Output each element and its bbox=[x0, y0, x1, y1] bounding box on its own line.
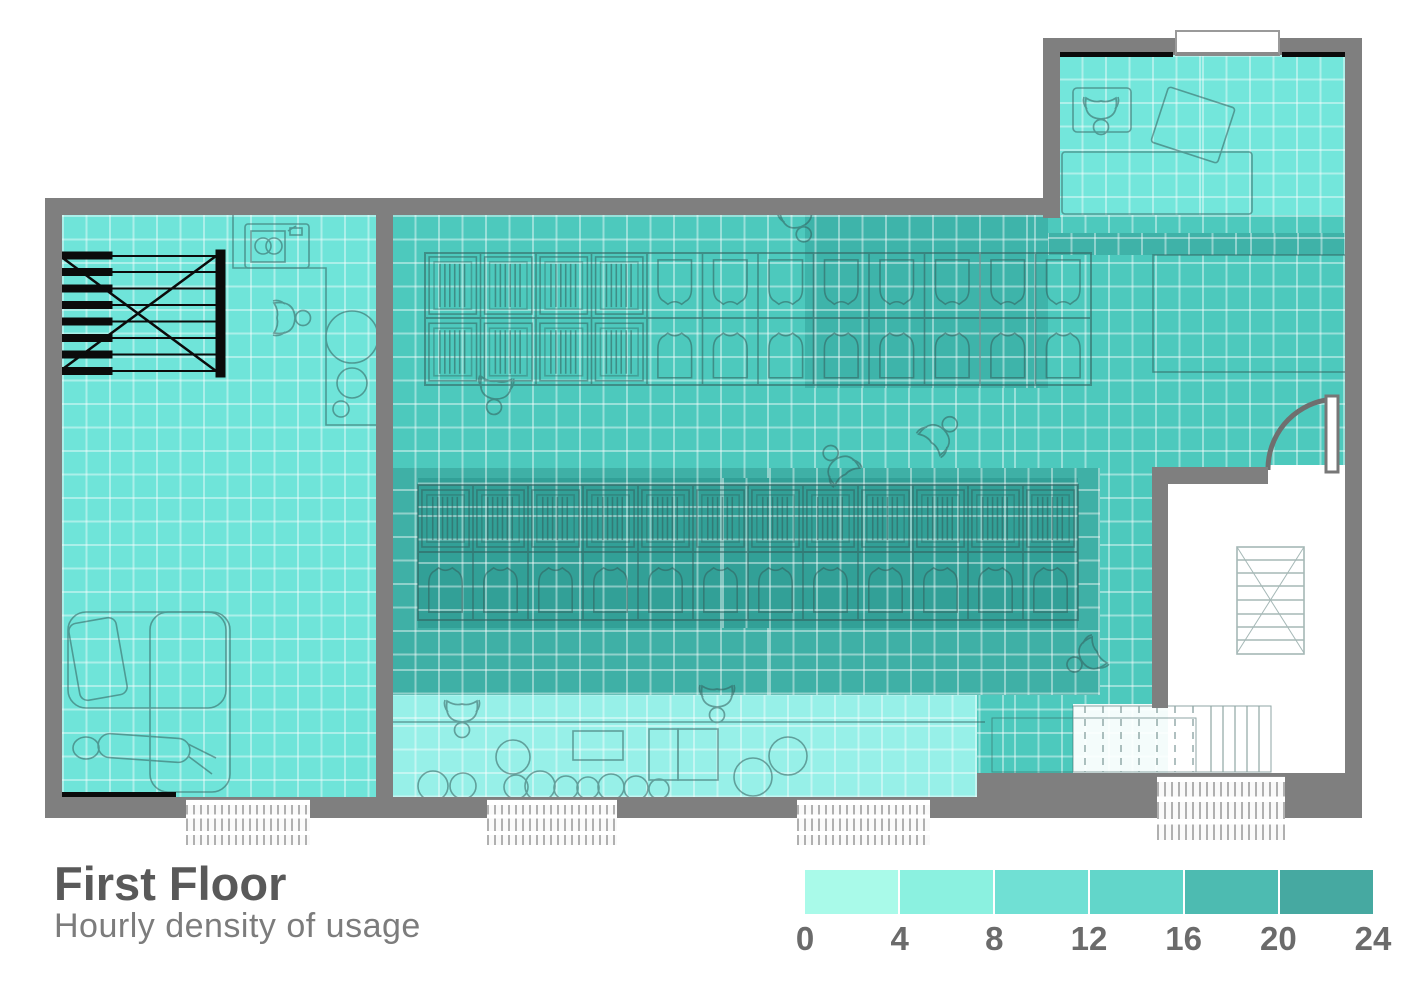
page-subtitle: Hourly density of usage bbox=[54, 909, 421, 943]
legend-tick-20: 20 bbox=[1260, 920, 1297, 958]
window-south-1 bbox=[186, 799, 310, 850]
wall-upper-room-left bbox=[1043, 38, 1060, 218]
legend-ticks: 04812162024 bbox=[805, 920, 1373, 960]
legend-swatch-3 bbox=[1088, 870, 1183, 914]
window-south-3 bbox=[797, 799, 930, 850]
page-title: First Floor bbox=[54, 860, 421, 907]
legend-swatch-2 bbox=[993, 870, 1088, 914]
wall-right bbox=[1345, 38, 1362, 800]
legend-swatches bbox=[805, 870, 1373, 914]
wall-accent-top-right bbox=[1282, 52, 1345, 57]
wall-top-main bbox=[45, 198, 1060, 215]
wall-left bbox=[45, 198, 62, 818]
legend-tick-0: 0 bbox=[796, 920, 814, 958]
caption: First Floor Hourly density of usage bbox=[54, 860, 421, 943]
legend-tick-24: 24 bbox=[1355, 920, 1392, 958]
wall-stairwell-left bbox=[1152, 484, 1168, 708]
legend-swatch-5 bbox=[1278, 870, 1373, 914]
legend-tick-12: 12 bbox=[1071, 920, 1108, 958]
legend-swatch-1 bbox=[898, 870, 993, 914]
zone-upper-desk-cluster bbox=[805, 215, 1048, 388]
zone-central-desk-core bbox=[418, 478, 1078, 628]
legend-swatch-4 bbox=[1183, 870, 1278, 914]
floorplan-heatmap: First Floor Hourly density of usage 0481… bbox=[0, 0, 1422, 992]
zone-north-right-strip bbox=[1048, 233, 1345, 255]
legend-swatch-0 bbox=[805, 870, 898, 914]
wall-stairwell-top bbox=[1152, 467, 1268, 484]
wall-mid-partition bbox=[376, 215, 393, 797]
legend-tick-16: 16 bbox=[1165, 920, 1202, 958]
zone-south-cafe-strip bbox=[393, 695, 977, 797]
density-legend: 04812162024 bbox=[805, 870, 1373, 960]
window-north bbox=[1175, 30, 1280, 56]
window-south-4 bbox=[1157, 776, 1285, 845]
legend-tick-8: 8 bbox=[985, 920, 1003, 958]
zone-left-lounge bbox=[62, 215, 376, 797]
wall-accent-top-left bbox=[1060, 52, 1173, 57]
zone-upper-right-office bbox=[1060, 55, 1345, 215]
legend-tick-4: 4 bbox=[890, 920, 908, 958]
wall-accent-bottom-left bbox=[62, 792, 176, 797]
window-south-2 bbox=[487, 799, 617, 850]
